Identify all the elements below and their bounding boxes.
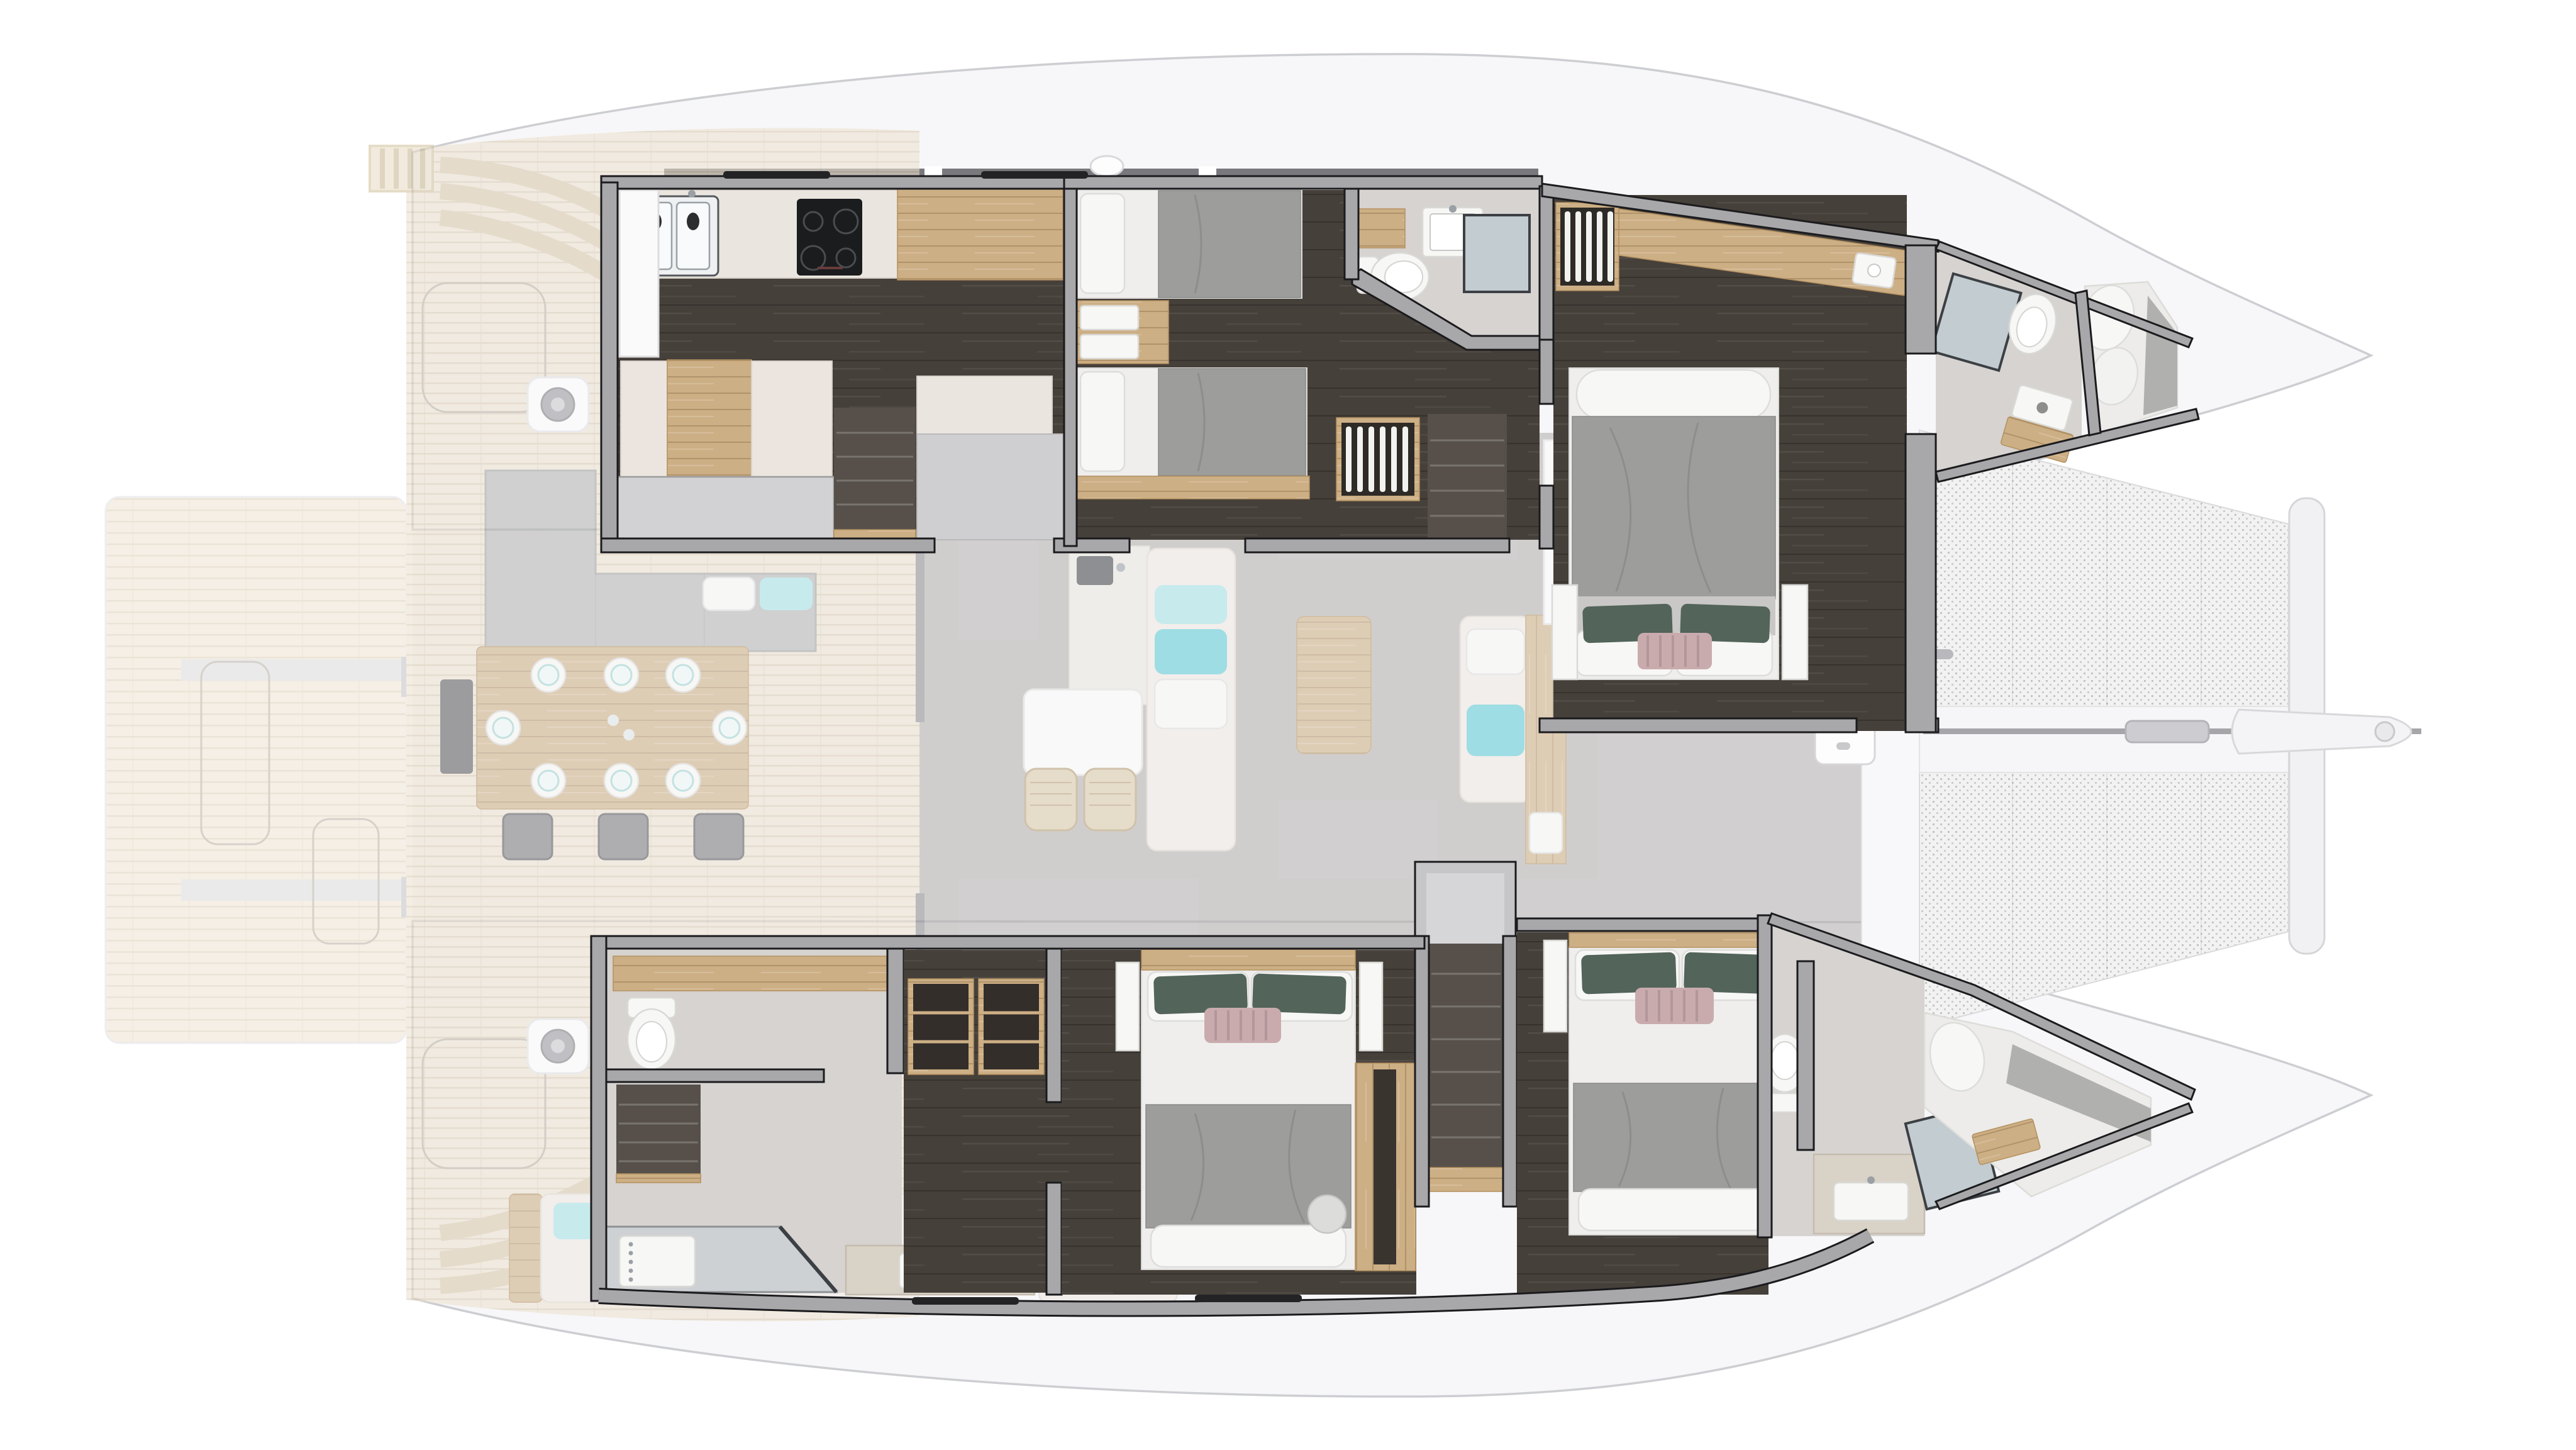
owner-washbasin — [1852, 253, 1896, 288]
galley-stairs — [834, 408, 916, 540]
faucet — [1116, 563, 1125, 572]
toilet — [628, 998, 675, 1069]
winch-port — [528, 377, 589, 432]
twin-cabin-stairs — [1428, 414, 1507, 546]
single-bed-2 — [1077, 368, 1309, 499]
aft-guest-cabin — [1062, 949, 1416, 1295]
open-shelf-locker — [908, 979, 974, 1074]
white-pillow — [703, 577, 755, 610]
cockpit-chairs — [503, 814, 743, 859]
bedside-slab — [1552, 585, 1577, 679]
teal-pillow — [1155, 629, 1227, 674]
coffee-table — [1297, 616, 1371, 754]
head-wall — [1345, 184, 1358, 279]
double-bed — [1569, 929, 1786, 1235]
bed-base — [1077, 476, 1309, 499]
headboard — [1141, 949, 1355, 970]
closet-corridor — [904, 942, 1062, 1295]
settee-berth — [602, 360, 834, 540]
head-oak-shelf — [613, 956, 890, 991]
galley-up-sink — [1077, 556, 1113, 585]
hanging-locker — [1336, 418, 1419, 501]
hull-window — [1195, 1295, 1302, 1302]
vanity-washbasin — [1814, 1154, 1924, 1234]
coffee-machine — [1529, 813, 1562, 853]
chaise-lounge — [1460, 616, 1531, 802]
salon-companionway — [1415, 862, 1517, 1207]
hull-window — [723, 171, 830, 179]
striped-pillow — [1204, 1008, 1281, 1043]
stool — [1308, 1195, 1346, 1233]
foot-roll — [1577, 370, 1770, 419]
open-shelf-locker — [979, 979, 1044, 1074]
escape-hatch — [619, 190, 658, 357]
teal-pillow — [760, 577, 813, 610]
swim-platform — [106, 497, 419, 1043]
galley-down — [602, 189, 1064, 540]
galley-oak-cabinet — [897, 189, 1063, 280]
settee-base-cabinet — [602, 477, 834, 540]
yacht-floor-plan — [0, 0, 2576, 1450]
foot-mattress — [1151, 1225, 1346, 1267]
bar-table — [1024, 689, 1142, 775]
salon-forward-sofa — [1147, 549, 1235, 850]
boarding-ladder — [370, 146, 433, 191]
aft-companionway-stairs — [616, 1085, 701, 1183]
non-skid-strip — [181, 879, 408, 901]
bedside-slab — [1782, 585, 1807, 679]
anchor-chain-plate — [2126, 721, 2209, 742]
striped-pillow — [1638, 633, 1712, 669]
nightstand-trays — [1077, 301, 1169, 364]
cockpit-console — [440, 679, 473, 774]
owner-hanging-locker — [1556, 203, 1619, 291]
teal-pillow — [1467, 705, 1524, 756]
single-bed-1 — [1077, 190, 1302, 298]
induction-cooktop — [797, 199, 862, 276]
galley-island — [917, 376, 1052, 434]
hull-window — [912, 1297, 1019, 1305]
head-wall — [606, 1069, 824, 1082]
teal-pillow — [1155, 585, 1227, 624]
white-pillow — [1155, 679, 1227, 728]
deck-vent — [1091, 156, 1123, 176]
owner-double-bed — [1569, 368, 1779, 679]
winch-starboard — [528, 1019, 589, 1073]
striped-pillow — [1635, 988, 1714, 1024]
white-pillow — [1467, 629, 1524, 674]
bowsprit-fitting — [2375, 722, 2394, 741]
vanity — [1357, 209, 1405, 248]
stair-landing — [1429, 1168, 1503, 1191]
head-partition — [887, 944, 904, 1073]
hull-window — [981, 171, 1088, 179]
bedside-slab — [1360, 962, 1382, 1051]
bedside-slab — [1116, 962, 1139, 1051]
bedside-slab — [1544, 940, 1567, 1032]
foot-mattress — [1579, 1189, 1780, 1230]
stair-landing — [917, 434, 1063, 540]
head-inner-wall — [1797, 961, 1814, 1150]
wardrobe-gap — [1374, 1069, 1396, 1264]
forward-owner-cabin — [1552, 195, 1907, 731]
shower — [1464, 215, 1529, 292]
